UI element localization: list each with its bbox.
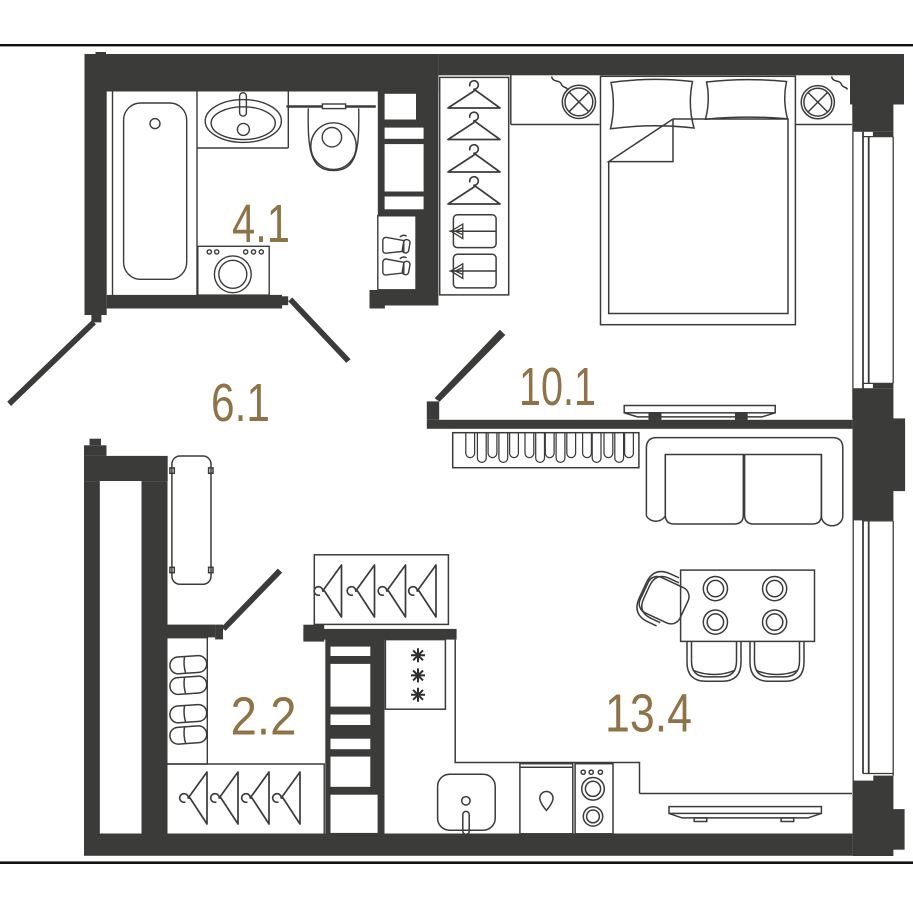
svg-text:2.2: 2.2	[231, 687, 297, 747]
svg-text:4.1: 4.1	[232, 194, 290, 254]
svg-text:10.1: 10.1	[519, 357, 596, 417]
svg-text:6.1: 6.1	[211, 373, 270, 433]
svg-text:13.4: 13.4	[605, 684, 692, 744]
